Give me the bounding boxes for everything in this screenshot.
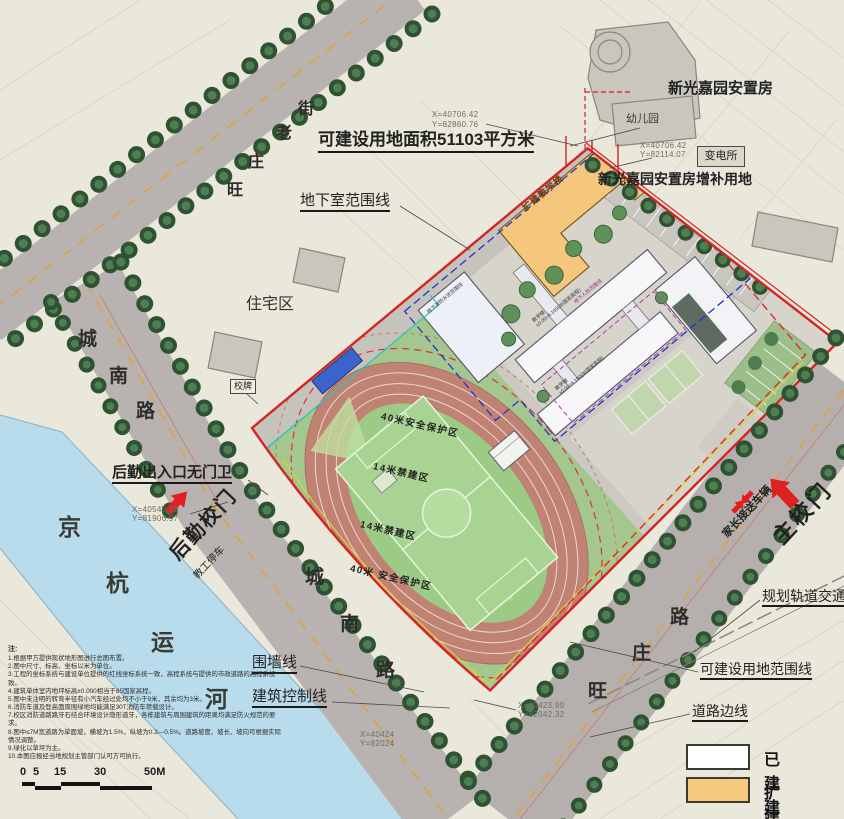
note-item: 3.工程的坐标系统与建设单位提供的红线坐标系统一致，高程系统与提供的市政道路的高… xyxy=(8,671,284,687)
kindergarten-label: 幼儿园 xyxy=(626,113,659,126)
logistics-entrance-label: 后勤出入口无门卫 xyxy=(112,464,232,484)
street-name-char: 街 xyxy=(298,102,314,118)
residential-house xyxy=(293,248,345,292)
coordinate-label: Y=82024 xyxy=(360,739,394,749)
school-sign-label: 校牌 xyxy=(230,379,256,394)
street-name-char: 庄 xyxy=(248,155,264,171)
scale-tick-label: 15 xyxy=(54,766,66,778)
scale-tick-label: 50M xyxy=(144,766,165,778)
road-name-char: 南 xyxy=(340,615,359,634)
street-name-char: 老 xyxy=(276,126,292,142)
scale-segment xyxy=(100,786,152,790)
substation-label: 变电所 xyxy=(697,146,745,167)
scale-segment xyxy=(22,782,35,786)
road-name-char: 路 xyxy=(670,608,689,627)
street-name-char: 旺 xyxy=(227,183,243,199)
note-item: 4.建筑单体室内地坪标高±0.000相当于85国家高程。 xyxy=(8,688,284,696)
note-item: 8.图中≤7M宽道路为单面坡，横坡为1.5%，纵坡为0.2—0.5%。道路坡度、… xyxy=(8,729,284,745)
site-plan: 街 老 庄 旺 可建设用地面积51103平方米 X=40706.42 Y=828… xyxy=(0,0,844,819)
residential-area-label: 住宅区 xyxy=(246,296,294,314)
legend-swatch-existing xyxy=(686,744,750,770)
coordinate-label: Y=81906.97 xyxy=(132,514,178,524)
legend-swatch-expansion xyxy=(686,777,750,803)
supplement-land-label: 新光嘉园安置房增补用地 xyxy=(598,171,752,187)
canal-name-char: 杭 xyxy=(106,572,129,595)
note-item: 7.校区消防道路路牙石结合环境设计隐形道牙，各栋建筑与周围建筑的距离均满足防火规… xyxy=(8,712,284,728)
note-item: 1.根据甲方提供现状地形图进行总图布置。 xyxy=(8,655,284,663)
scale-segment xyxy=(61,782,100,786)
buildable-area-label: 可建设用地面积51103平方米 xyxy=(318,130,534,153)
scale-tick-label: 0 xyxy=(20,766,26,778)
resettlement-round-tower xyxy=(590,32,630,72)
coordinate-label: Y=82114.07 xyxy=(640,150,686,160)
scale-segment xyxy=(35,786,61,790)
canal-name-char: 京 xyxy=(58,516,81,539)
general-notes: 注: 1.根据甲方提供现状地形图进行总图布置。 2.图中尺寸、标高、坐标以米为单… xyxy=(8,646,284,761)
planned-rail-label: 规划轨道交通 xyxy=(762,588,844,607)
road-name-char: 城 xyxy=(305,568,324,587)
basement-line-label: 地下室范围线 xyxy=(300,192,390,212)
residential-house xyxy=(208,332,262,378)
note-item: 9.绿化以草坪为主。 xyxy=(8,745,284,753)
road-name-char: 路 xyxy=(136,402,155,421)
note-item: 5.图中未注明的转弯半径有小汽车经过处均不小于9米，其余均为3米。 xyxy=(8,696,284,704)
road-name-char: 南 xyxy=(109,367,128,386)
legend-label: 扩建教学楼 xyxy=(764,779,780,819)
scale-tick-label: 30 xyxy=(94,766,106,778)
road-name-char: 城 xyxy=(78,330,97,349)
road-name-char: 庄 xyxy=(632,644,651,663)
road-name-char: 路 xyxy=(376,661,395,680)
road-wangzhuang-old-street xyxy=(0,0,408,318)
coordinate-label: Y=82860.76 xyxy=(432,120,478,130)
scale-tick-label: 5 xyxy=(33,766,39,778)
road-edge-label: 道路边线 xyxy=(692,703,748,722)
scale-bar: 0 5 15 30 50M xyxy=(22,766,172,798)
buildable-boundary-label: 可建设用地范围线 xyxy=(700,661,812,680)
road-name-char: 旺 xyxy=(588,682,607,701)
notes-heading: 注: xyxy=(8,646,284,655)
note-item: 10.本图应报经当地规划主管部门认可方可执行。 xyxy=(8,753,284,761)
residence-building xyxy=(752,212,838,262)
coordinate-label: X=40706.42 xyxy=(432,110,478,120)
coordinate-label: Y=82042.32 xyxy=(518,710,564,720)
resettlement-area-label: 新光嘉园安置房 xyxy=(668,80,773,97)
